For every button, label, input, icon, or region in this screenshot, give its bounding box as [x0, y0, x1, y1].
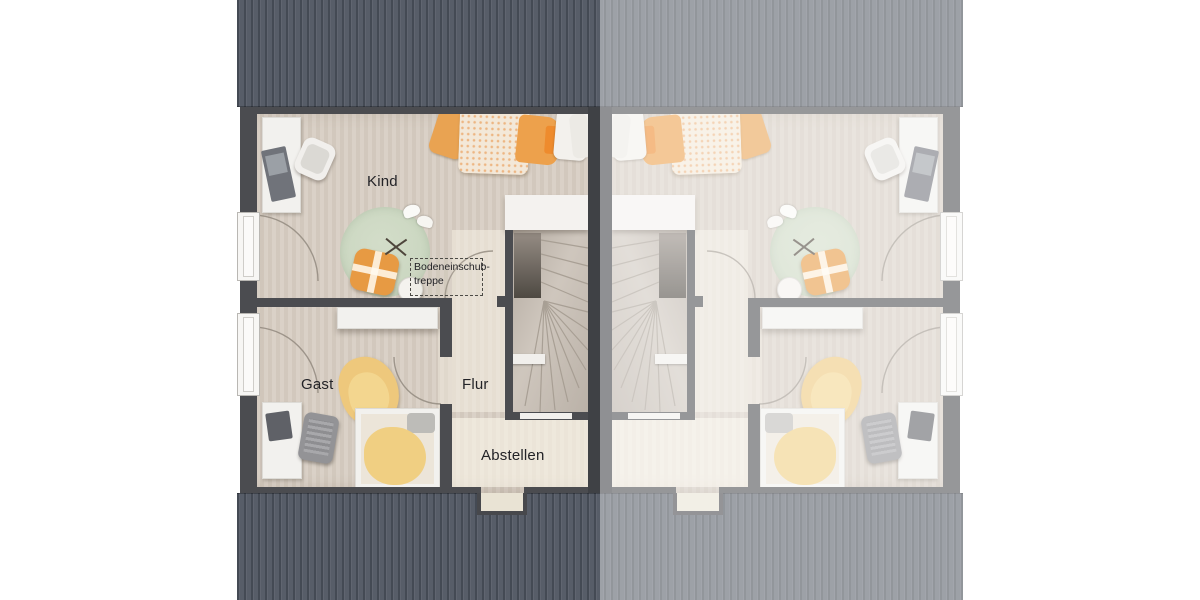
- unit-left: [237, 0, 600, 600]
- door-arc-window-guest: [252, 327, 318, 393]
- duplex-plan: Kind Gast Flur Abstellen Bodeneinschub- …: [237, 0, 963, 600]
- door-arc-guest-hall: [394, 357, 441, 404]
- exterior-wall-top: [240, 107, 600, 114]
- window-glass: [243, 216, 254, 277]
- window-guest-room: [237, 313, 260, 396]
- understair-door: [520, 413, 572, 419]
- wall-guest-storage: [440, 404, 452, 492]
- chimney-notch: [477, 493, 527, 515]
- unit-geometry: [237, 0, 600, 600]
- unit-right: [600, 0, 963, 600]
- party-wall: [588, 107, 600, 493]
- faded-unit-overlay: [600, 0, 963, 600]
- window-child-room: [237, 212, 260, 281]
- door-arc-child-hall: [445, 251, 493, 299]
- stair-wall-bottom: [505, 412, 588, 420]
- wall-child-guest: [257, 298, 447, 307]
- wall-hall-guest-upper: [440, 298, 452, 357]
- exterior-wall-bottom-b: [524, 487, 588, 493]
- exterior-wall-gable: [240, 107, 257, 493]
- floor-plan-image: Kind Gast Flur Abstellen Bodeneinschub- …: [0, 0, 1200, 600]
- stair-wall-side: [505, 230, 513, 420]
- door-arc-window-child: [252, 215, 318, 281]
- window-glass: [243, 317, 254, 392]
